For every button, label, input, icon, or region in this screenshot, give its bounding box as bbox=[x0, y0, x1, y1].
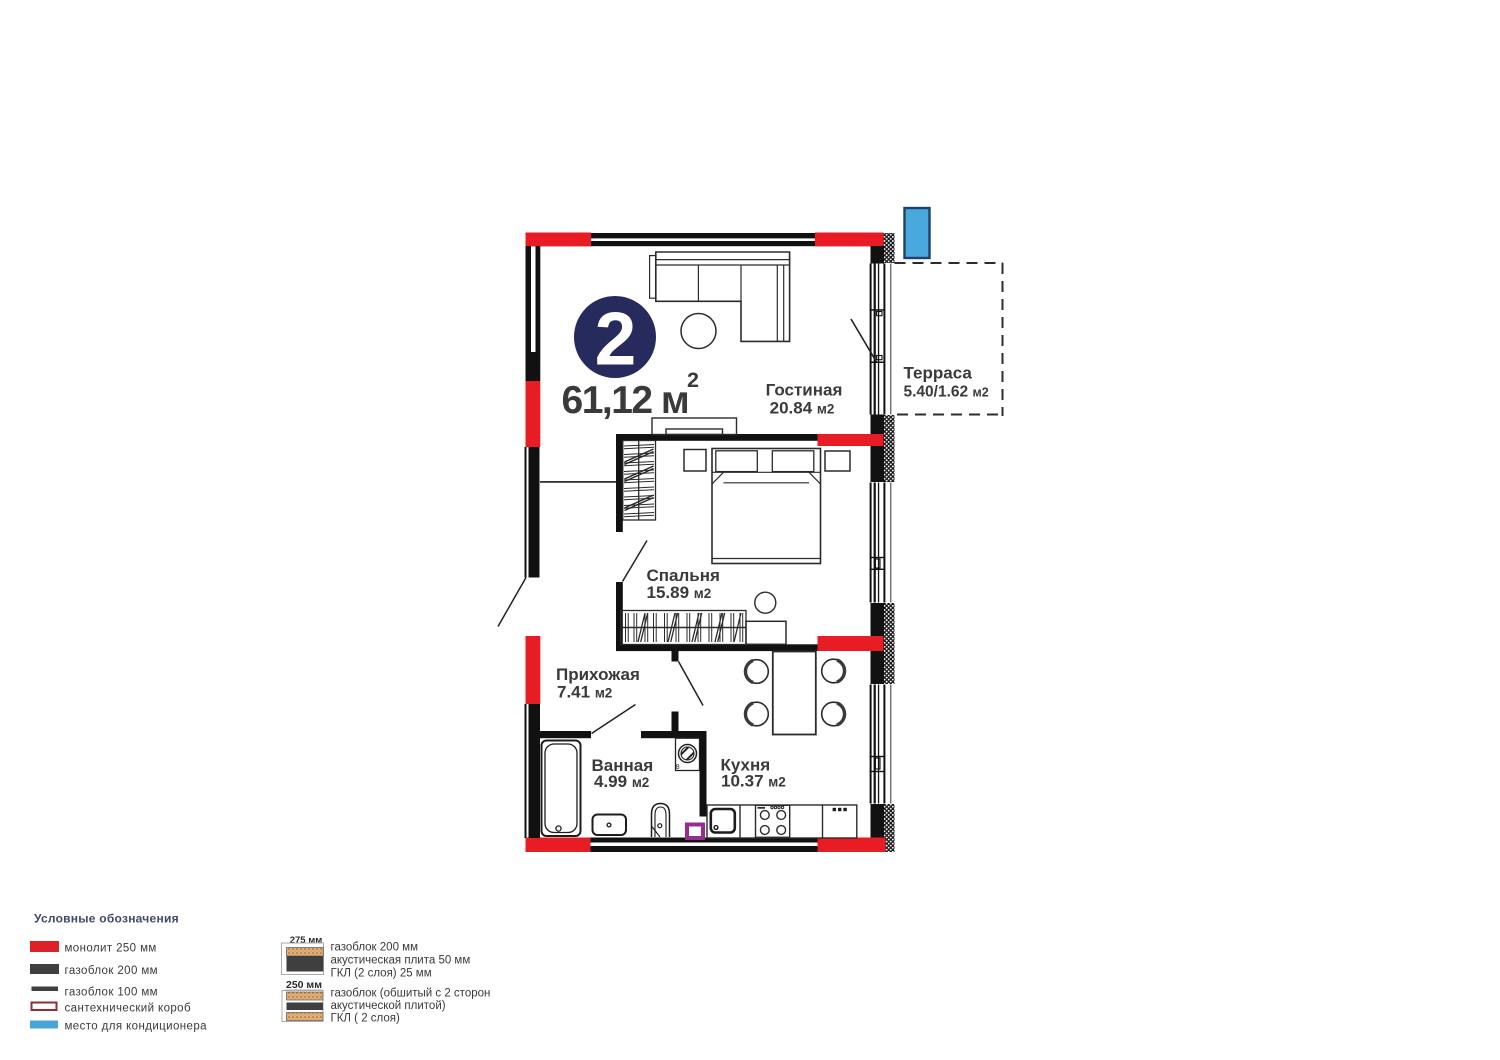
svg-text:Прихожая: Прихожая bbox=[556, 665, 640, 684]
svg-text:15.89 м2: 15.89 м2 bbox=[647, 583, 712, 602]
svg-text:250 мм: 250 мм bbox=[286, 979, 322, 991]
svg-text:61,12 м: 61,12 м bbox=[562, 379, 689, 422]
svg-text:газоблок 200 мм: газоблок 200 мм bbox=[65, 965, 158, 977]
svg-text:сантехнический короб: сантехнический короб bbox=[65, 1003, 191, 1015]
svg-text:10.37 м2: 10.37 м2 bbox=[721, 772, 786, 791]
svg-text:газоблок (обшитый с 2 сторон: газоблок (обшитый с 2 сторон bbox=[331, 988, 491, 1000]
svg-text:Условные обозначения: Условные обозначения bbox=[34, 912, 179, 926]
svg-text:20.84 м2: 20.84 м2 bbox=[770, 399, 835, 418]
svg-text:место для кондиционера: место для кондиционера bbox=[65, 1021, 208, 1033]
svg-text:акустическая плита 50 мм: акустическая плита 50 мм bbox=[331, 955, 471, 967]
svg-text:2: 2 bbox=[687, 368, 699, 392]
svg-text:5.40/1.62 м2: 5.40/1.62 м2 bbox=[904, 384, 989, 401]
svg-text:Терраса: Терраса bbox=[904, 364, 973, 383]
svg-text:ГКЛ ( 2 слоя): ГКЛ ( 2 слоя) bbox=[331, 1013, 400, 1025]
svg-text:газоблок 200 мм: газоблок 200 мм bbox=[331, 942, 419, 954]
svg-text:ГКЛ (2 слоя) 25 мм: ГКЛ (2 слоя) 25 мм bbox=[331, 968, 432, 980]
svg-text:газоблок 100 мм: газоблок 100 мм bbox=[65, 987, 158, 999]
svg-text:монолит 250 мм: монолит 250 мм bbox=[65, 943, 157, 955]
svg-text:8: 8 bbox=[676, 764, 680, 771]
svg-text:7.41 м2: 7.41 м2 bbox=[557, 683, 612, 702]
svg-text:акустической плитой): акустической плитой) bbox=[331, 1000, 446, 1012]
svg-text:Гостиная: Гостиная bbox=[766, 381, 843, 400]
svg-text:4.99 м2: 4.99 м2 bbox=[594, 772, 649, 791]
svg-text:2: 2 bbox=[595, 297, 637, 381]
